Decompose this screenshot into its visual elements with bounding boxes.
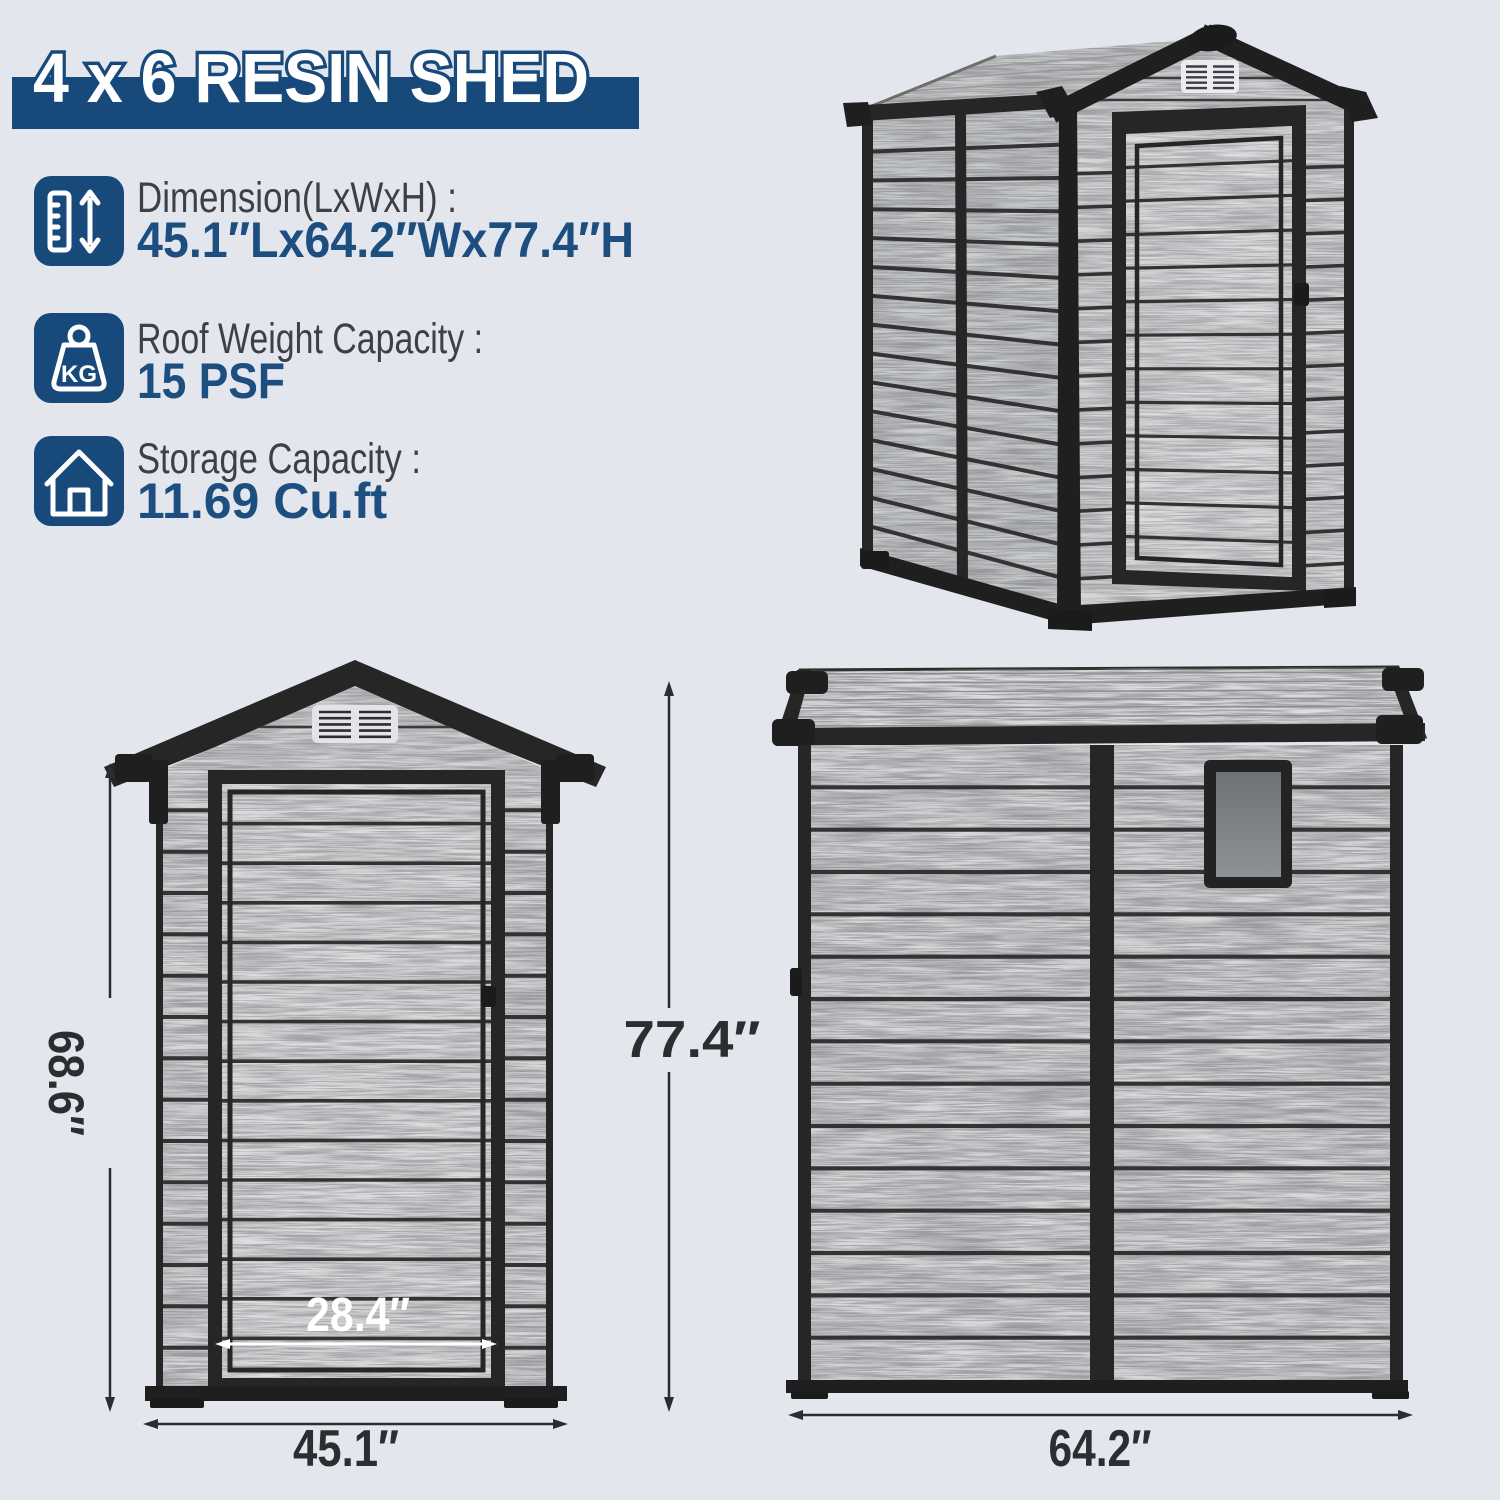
svg-text:15 PSF: 15 PSF [137,353,285,409]
svg-text:68.6″: 68.6″ [38,1030,94,1136]
svg-text:KG: KG [61,361,97,388]
svg-text:77.4″: 77.4″ [624,1011,761,1069]
svg-text:28.4″: 28.4″ [306,1289,410,1342]
svg-text:64.2″: 64.2″ [1049,1420,1152,1478]
svg-text:11.69 Cu.ft: 11.69 Cu.ft [137,473,387,529]
svg-text:4 x 6 RESIN SHED: 4 x 6 RESIN SHED [33,39,589,117]
svg-text:45.1″: 45.1″ [293,1420,399,1478]
svg-text:45.1″Lx64.2″Wx77.4″H: 45.1″Lx64.2″Wx77.4″H [137,212,634,268]
